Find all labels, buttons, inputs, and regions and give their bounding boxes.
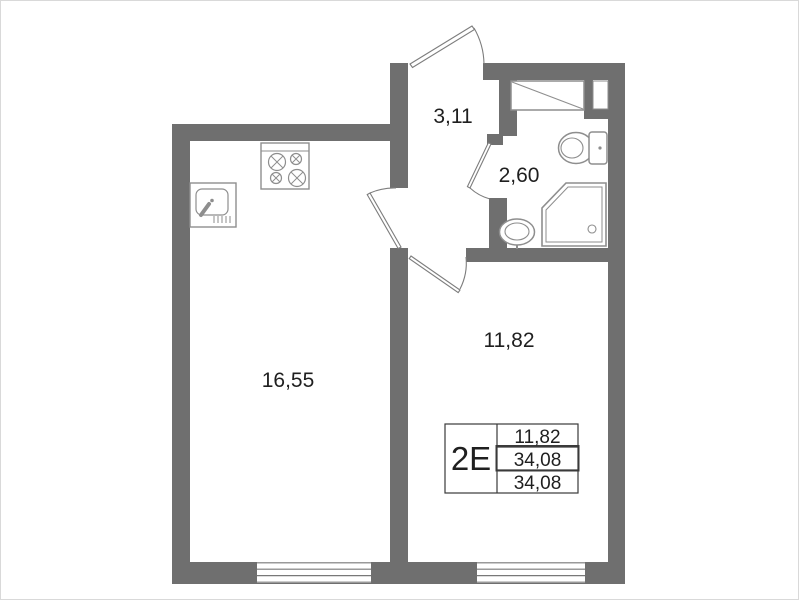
info-table-row-living-area: 11,82 xyxy=(514,427,560,448)
wall-below-bath xyxy=(466,248,625,262)
kitchen-area-label: 16,55 xyxy=(262,369,315,392)
window-left xyxy=(257,562,371,583)
wall-closet-divider xyxy=(584,80,593,111)
wall-top-right xyxy=(483,63,625,80)
duct-niche xyxy=(593,81,608,109)
wardrobe-icon xyxy=(511,81,584,110)
stove-icon xyxy=(261,143,309,189)
floor-plan-drawing: 3,11 2,60 16,55 11,82 2Е 11,82 34,08 34,… xyxy=(0,0,799,600)
wall-hallway-upper xyxy=(390,63,408,188)
bathroom-door-icon xyxy=(467,143,491,199)
kitchen-door-icon xyxy=(367,188,401,249)
floor-plan-canvas: 3,11 2,60 16,55 11,82 2Е 11,82 34,08 34,… xyxy=(0,0,799,600)
walls xyxy=(172,63,625,584)
kitchen-sink-icon xyxy=(190,183,236,227)
wall-right xyxy=(608,63,625,583)
bathroom-area-label: 2,60 xyxy=(499,164,540,187)
room-area-label: 11,82 xyxy=(484,329,535,352)
unit-code: 2Е xyxy=(451,440,491,477)
hallway-area-label: 3,11 xyxy=(433,105,472,128)
shower-icon xyxy=(542,183,606,246)
info-table: 2Е 11,82 34,08 34,08 xyxy=(445,424,579,494)
window-right xyxy=(477,562,585,583)
wall-niche-sill xyxy=(584,108,625,119)
room-door-icon xyxy=(409,256,466,293)
wall-left xyxy=(172,124,190,584)
wall-top-kitchen xyxy=(172,124,398,141)
entrance-door-icon xyxy=(410,26,484,68)
info-table-row-total-area: 34,08 xyxy=(514,450,562,471)
wall-kitchen-room-divider xyxy=(390,248,408,583)
info-table-row-overall-area: 34,08 xyxy=(514,473,562,494)
toilet-icon xyxy=(559,132,608,164)
